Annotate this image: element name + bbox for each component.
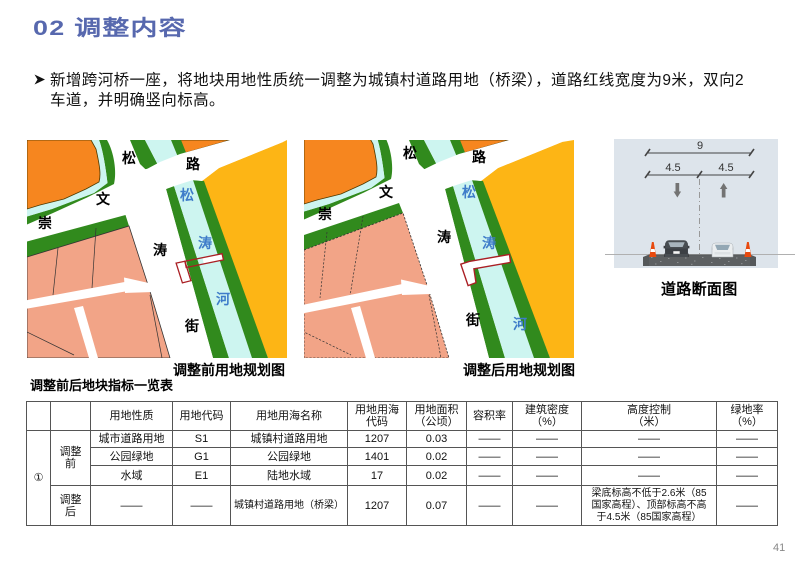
svg-text:街: 街 [184,318,199,334]
svg-text:河: 河 [216,291,230,307]
svg-text:4.5: 4.5 [665,162,680,174]
svg-text:路: 路 [472,149,487,165]
svg-text:涛: 涛 [482,235,496,251]
svg-text:河: 河 [513,316,527,332]
svg-text:街: 街 [465,312,480,328]
svg-text:松: 松 [122,150,136,166]
svg-text:文: 文 [96,191,111,207]
svg-text:4.5: 4.5 [718,162,733,174]
svg-text:松: 松 [180,187,194,203]
svg-text:崇: 崇 [318,206,332,222]
svg-text:涛: 涛 [198,235,212,251]
svg-text:文: 文 [379,184,394,200]
svg-text:松: 松 [403,145,417,161]
svg-text:涛: 涛 [437,229,451,245]
svg-text:涛: 涛 [153,242,167,258]
svg-text:路: 路 [186,156,201,172]
svg-text:崇: 崇 [38,215,52,231]
svg-text:9: 9 [697,140,703,152]
svg-text:松: 松 [462,184,476,200]
